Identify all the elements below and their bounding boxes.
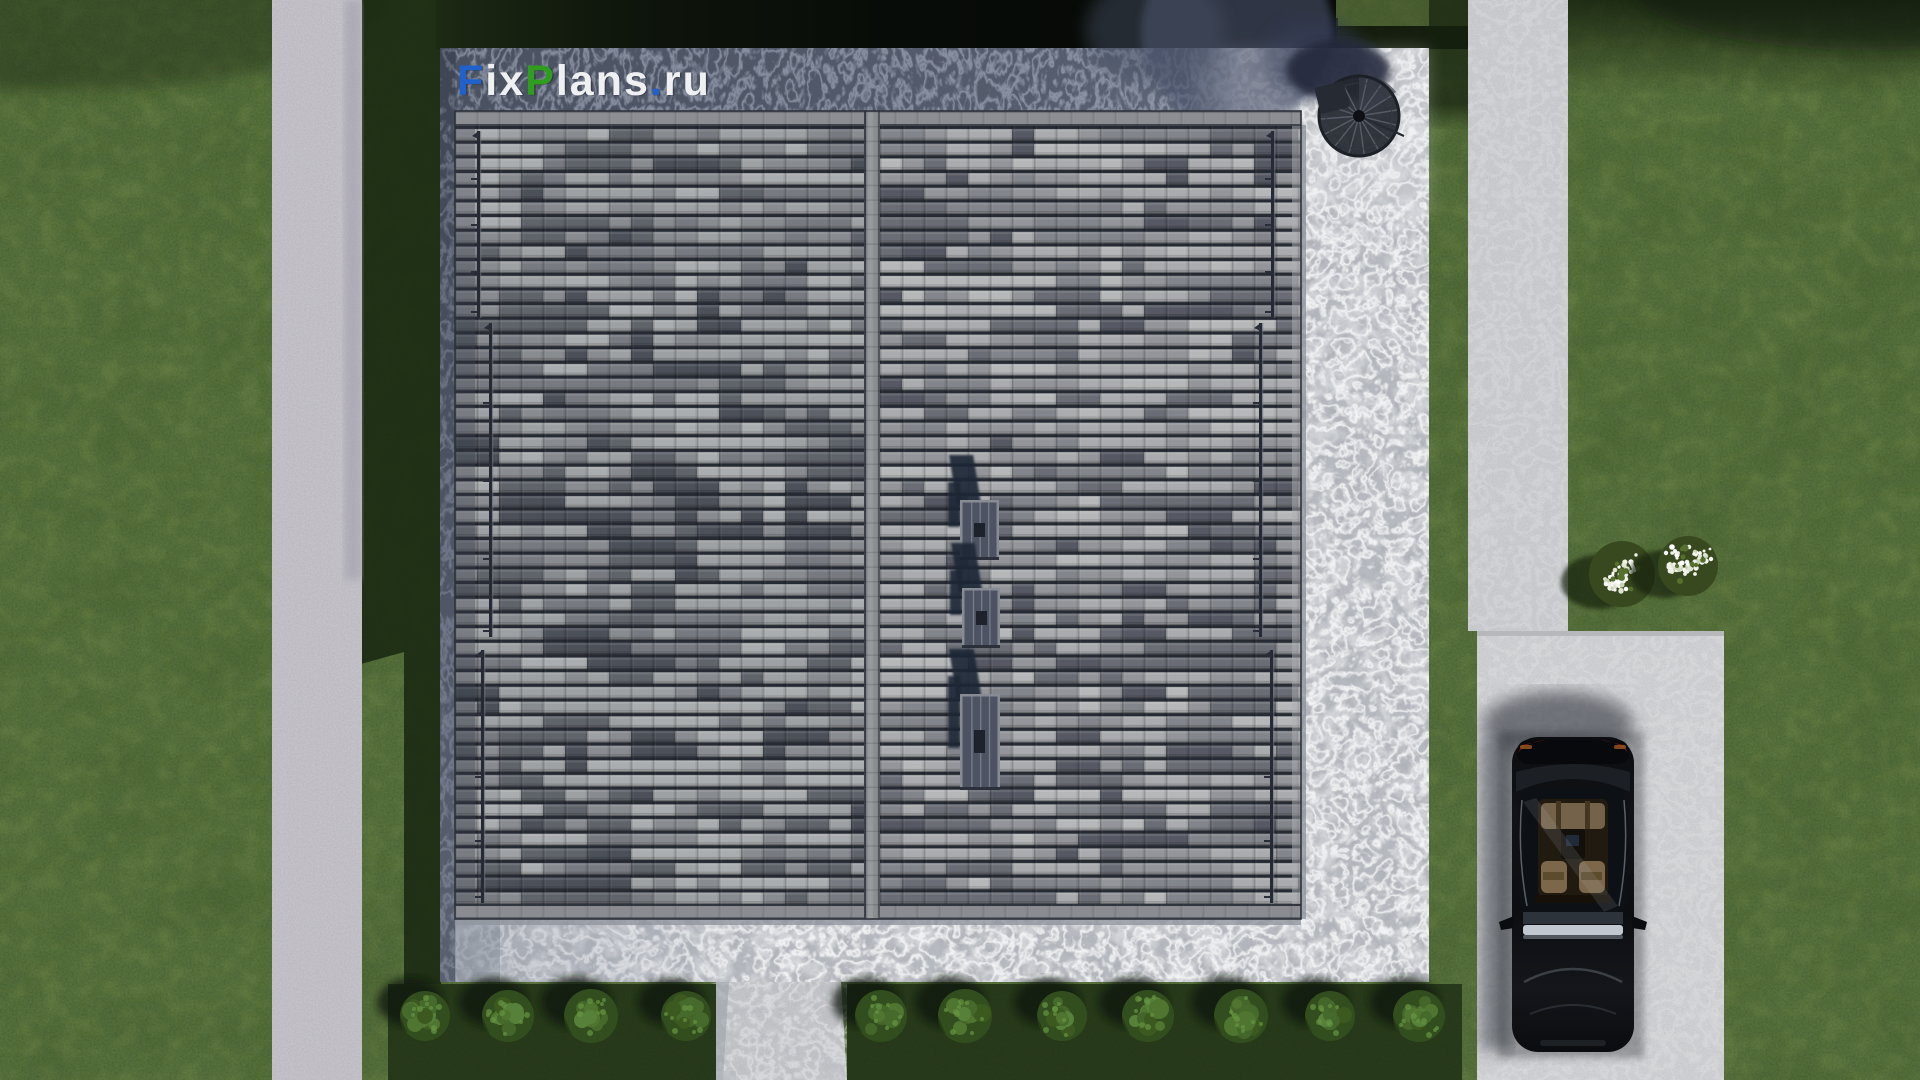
- svg-text:FixPlans.ru: FixPlans.ru: [457, 57, 711, 105]
